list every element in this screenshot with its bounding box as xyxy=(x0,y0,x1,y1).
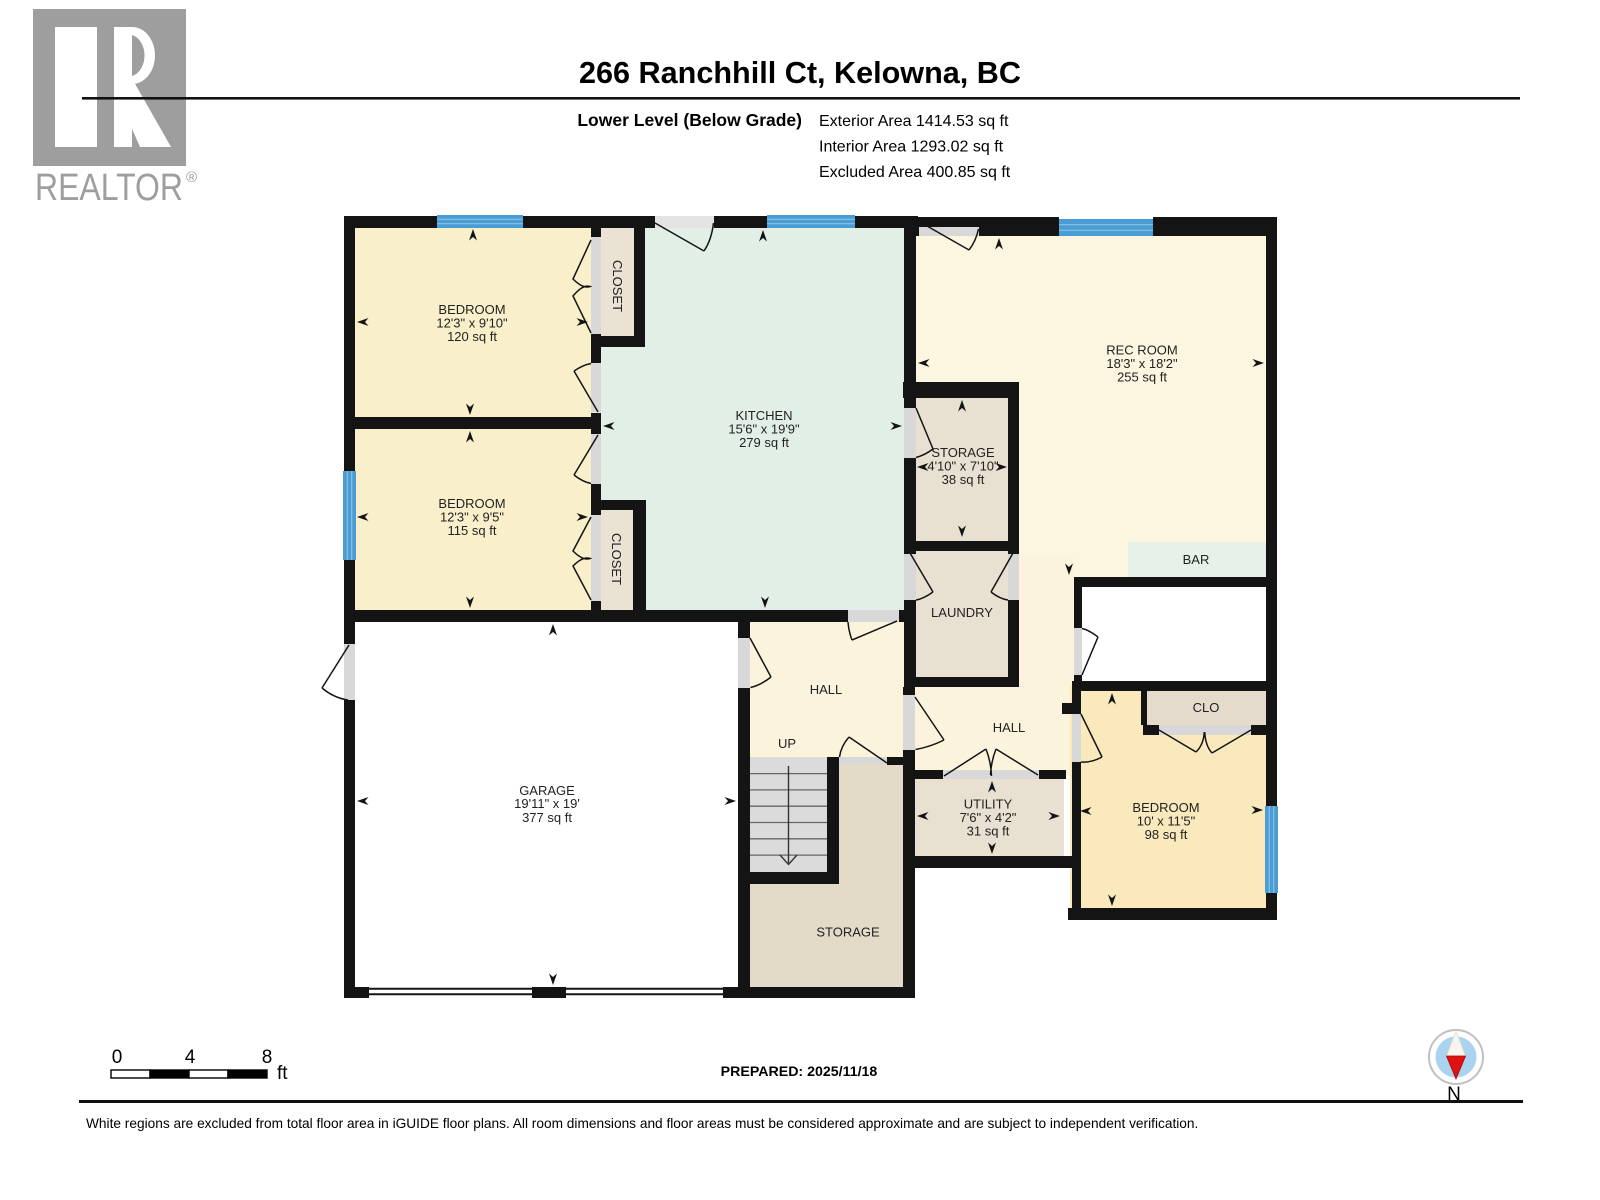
svg-text:120 sq ft: 120 sq ft xyxy=(447,329,497,344)
svg-text:CLO: CLO xyxy=(1193,700,1220,715)
svg-text:HALL: HALL xyxy=(810,682,843,697)
svg-text:31 sq ft: 31 sq ft xyxy=(967,824,1010,839)
svg-text:REALTOR: REALTOR xyxy=(35,167,183,209)
svg-text:19'11" x 19': 19'11" x 19' xyxy=(514,796,580,811)
svg-text:Excluded Area 400.85 sq ft: Excluded Area 400.85 sq ft xyxy=(819,164,1011,181)
svg-text:White regions are excluded fro: White regions are excluded from total fl… xyxy=(86,1116,1198,1131)
svg-text:255 sq ft: 255 sq ft xyxy=(1117,370,1167,385)
svg-text:0: 0 xyxy=(112,1047,123,1068)
svg-text:Exterior Area 1414.53 sq ft: Exterior Area 1414.53 sq ft xyxy=(819,113,1009,130)
svg-text:98 sq ft: 98 sq ft xyxy=(1145,827,1188,842)
svg-text:CLOSET: CLOSET xyxy=(609,533,624,585)
svg-text:Lower Level (Below Grade): Lower Level (Below Grade) xyxy=(577,110,802,130)
svg-text:38 sq ft: 38 sq ft xyxy=(942,472,985,487)
svg-text:CLOSET: CLOSET xyxy=(610,260,625,312)
svg-text:STORAGE: STORAGE xyxy=(816,925,880,940)
svg-text:8: 8 xyxy=(262,1047,273,1068)
svg-text:ft: ft xyxy=(277,1063,288,1084)
svg-text:HALL: HALL xyxy=(993,720,1026,735)
svg-text:®: ® xyxy=(186,169,197,186)
svg-text:266 Ranchhill Ct, Kelowna, BC: 266 Ranchhill Ct, Kelowna, BC xyxy=(579,56,1021,90)
svg-text:377 sq ft: 377 sq ft xyxy=(522,810,572,825)
svg-text:UP: UP xyxy=(778,736,796,751)
svg-text:LAUNDRY: LAUNDRY xyxy=(931,605,993,620)
svg-text:BAR: BAR xyxy=(1183,552,1210,567)
svg-text:Interior Area 1293.02 sq ft: Interior Area 1293.02 sq ft xyxy=(819,139,1004,156)
svg-text:4: 4 xyxy=(185,1047,196,1068)
svg-text:115 sq ft: 115 sq ft xyxy=(448,523,497,538)
svg-text:PREPARED: 2025/11/18: PREPARED: 2025/11/18 xyxy=(721,1064,878,1080)
svg-text:279 sq ft: 279 sq ft xyxy=(739,435,789,450)
